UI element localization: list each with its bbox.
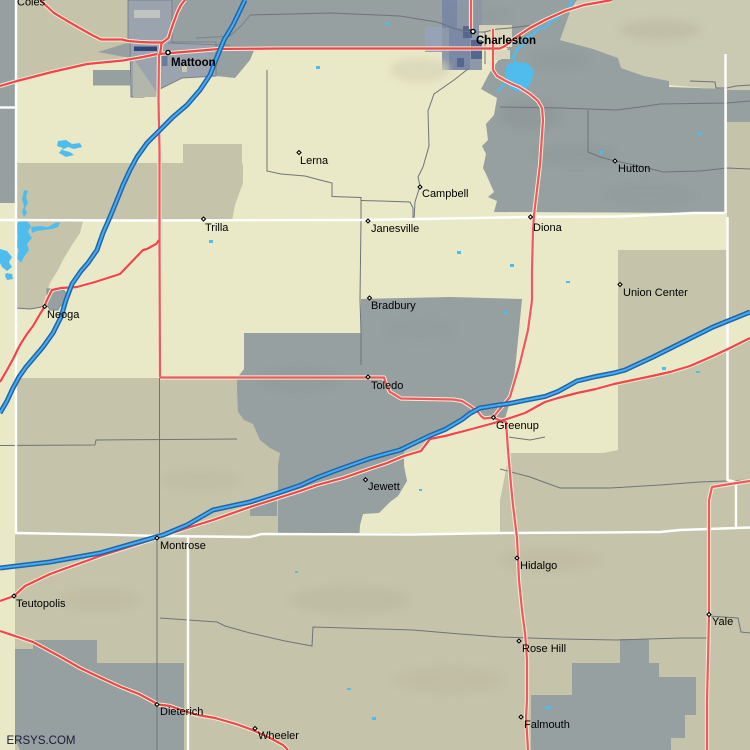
svg-text:Dieterich: Dieterich: [160, 706, 203, 718]
svg-text:Trilla: Trilla: [205, 222, 229, 234]
svg-text:Toledo: Toledo: [371, 380, 403, 392]
svg-text:Jewett: Jewett: [368, 481, 400, 493]
svg-text:Teutopolis: Teutopolis: [16, 598, 66, 610]
svg-text:Neoga: Neoga: [47, 309, 80, 321]
svg-text:Wheeler: Wheeler: [258, 730, 299, 742]
svg-text:Bradbury: Bradbury: [371, 300, 416, 312]
svg-text:Hidalgo: Hidalgo: [520, 560, 557, 572]
svg-text:Mattoon: Mattoon: [171, 57, 216, 69]
svg-text:Greenup: Greenup: [496, 420, 539, 432]
svg-text:Lerna: Lerna: [300, 155, 329, 167]
svg-text:Falmouth: Falmouth: [524, 719, 570, 731]
svg-text:Rose Hill: Rose Hill: [522, 643, 566, 655]
svg-text:Campbell: Campbell: [422, 188, 468, 200]
svg-text:Hutton: Hutton: [618, 163, 650, 175]
svg-text:ERSYS.COM: ERSYS.COM: [7, 735, 76, 747]
svg-text:Montrose: Montrose: [160, 540, 206, 552]
svg-text:Union Center: Union Center: [623, 287, 688, 299]
svg-text:Yale: Yale: [712, 616, 733, 628]
svg-text:Coles: Coles: [17, 0, 46, 9]
svg-text:Charleston: Charleston: [476, 35, 536, 47]
svg-text:Janesville: Janesville: [371, 223, 419, 235]
svg-text:Diona: Diona: [533, 222, 563, 234]
